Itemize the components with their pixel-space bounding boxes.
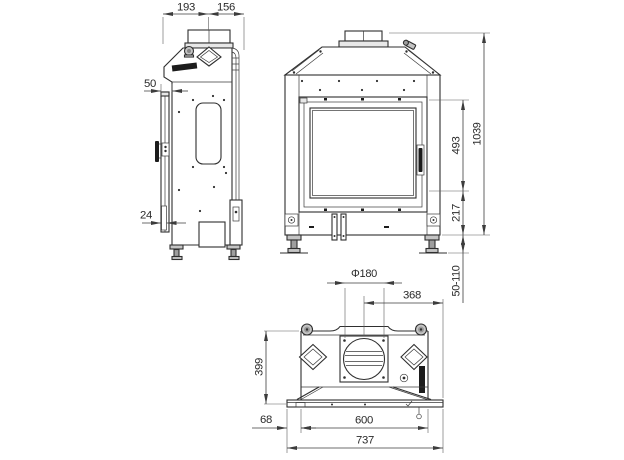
adjustable-foot-right-front [419,235,447,253]
adjustable-foot-back-side [227,245,240,260]
dim-label-493: 493 [451,136,463,154]
hood-front [285,47,440,75]
flue-collar-front [339,41,388,47]
dim-width-stack: 68 600 737 [252,409,443,453]
door-front [299,97,427,212]
dim-label-50: 50 [144,78,156,90]
hood-knob-side [185,47,194,58]
leg-plate-left [285,214,298,226]
front-view [280,31,447,253]
adjustable-foot-left-front [280,235,308,253]
dim-label-156: 156 [217,2,235,14]
brand-badge-top [419,366,425,393]
diamond-plate-top-right [401,345,427,370]
top-knob-right [416,324,427,335]
dim-label-68: 68 [260,414,272,426]
door-frame-side [161,92,169,232]
top-view [287,324,443,419]
dim-label-368: 368 [403,290,421,302]
flue-outlet-top [340,336,388,382]
dim-label-600: 600 [355,415,373,427]
top-back-edge [301,327,428,332]
diamond-plate-top-left [300,345,327,370]
dim-top-depth: 399 [254,331,300,404]
dim-label-24: 24 [140,210,152,222]
leg-plate-right [427,214,440,226]
technical-drawing-page: 193 156 50 24 493 [0,0,624,460]
dim-label-217: 217 [451,204,463,222]
adjustable-foot-front-side [170,245,183,260]
door-glass [310,108,416,198]
fireplace-technical-drawing: 193 156 50 24 493 [0,0,624,460]
side-view [155,30,242,260]
air-intake-box-side [199,222,225,247]
door-handle-front [417,145,424,175]
top-small-knob [400,374,408,382]
rear-leg-side [230,200,242,245]
dim-label-399: 399 [254,358,266,376]
dim-label-phi180: Φ180 [351,268,377,280]
top-knob-left [302,324,313,335]
dim-label-1039: 1039 [472,122,484,145]
dim-label-50-110: 50-110 [451,265,463,296]
dim-label-193: 193 [177,2,195,14]
side-service-cutout [196,103,221,164]
dim-label-737: 737 [356,435,374,447]
